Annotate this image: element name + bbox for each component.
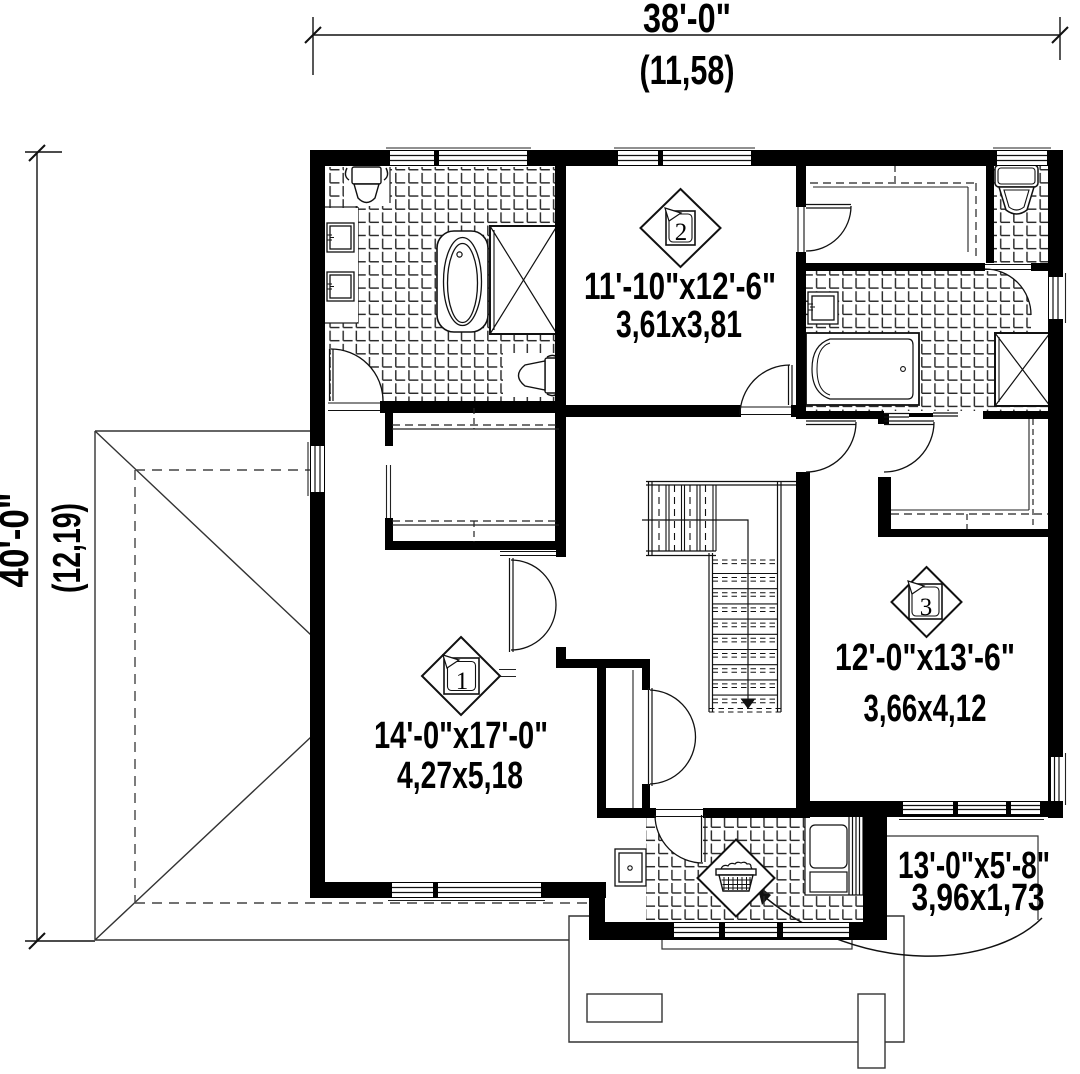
svg-text:40'-0": 40'-0" xyxy=(0,493,37,588)
svg-text:(12,19): (12,19) xyxy=(46,503,89,593)
svg-text:1: 1 xyxy=(456,668,469,695)
svg-text:4,27x5,18: 4,27x5,18 xyxy=(397,755,523,797)
svg-text:2: 2 xyxy=(675,219,688,246)
svg-text:3,96x1,73: 3,96x1,73 xyxy=(912,877,1045,919)
svg-text:12'-0"x13'-6": 12'-0"x13'-6" xyxy=(835,637,1015,679)
svg-text:3: 3 xyxy=(920,594,933,621)
svg-text:14'-0"x17'-0": 14'-0"x17'-0" xyxy=(374,715,548,757)
svg-text:3,61x3,81: 3,61x3,81 xyxy=(616,304,742,346)
svg-text:(11,58): (11,58) xyxy=(640,47,735,93)
svg-text:38'-0": 38'-0" xyxy=(643,0,731,41)
svg-text:11'-10"x12'-6": 11'-10"x12'-6" xyxy=(584,266,776,308)
svg-text:3,66x4,12: 3,66x4,12 xyxy=(864,688,987,730)
